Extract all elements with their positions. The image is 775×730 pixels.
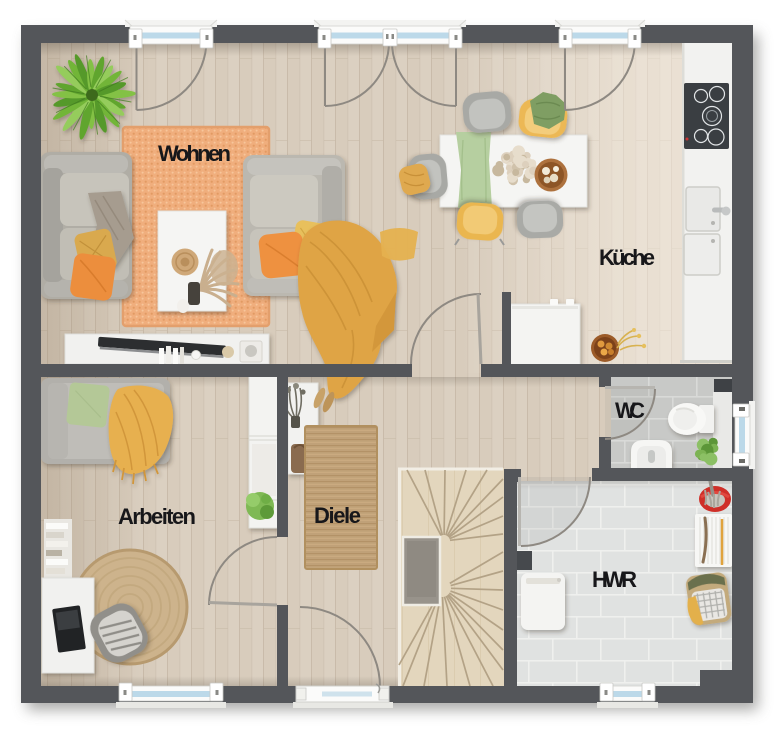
svg-text:Arbeiten: Arbeiten xyxy=(118,504,196,529)
svg-text:Küche: Küche xyxy=(599,245,655,270)
svg-text:WC: WC xyxy=(615,398,645,423)
svg-text:Diele: Diele xyxy=(314,503,361,528)
svg-text:HWR: HWR xyxy=(592,567,637,592)
svg-text:Wohnen: Wohnen xyxy=(158,141,231,166)
